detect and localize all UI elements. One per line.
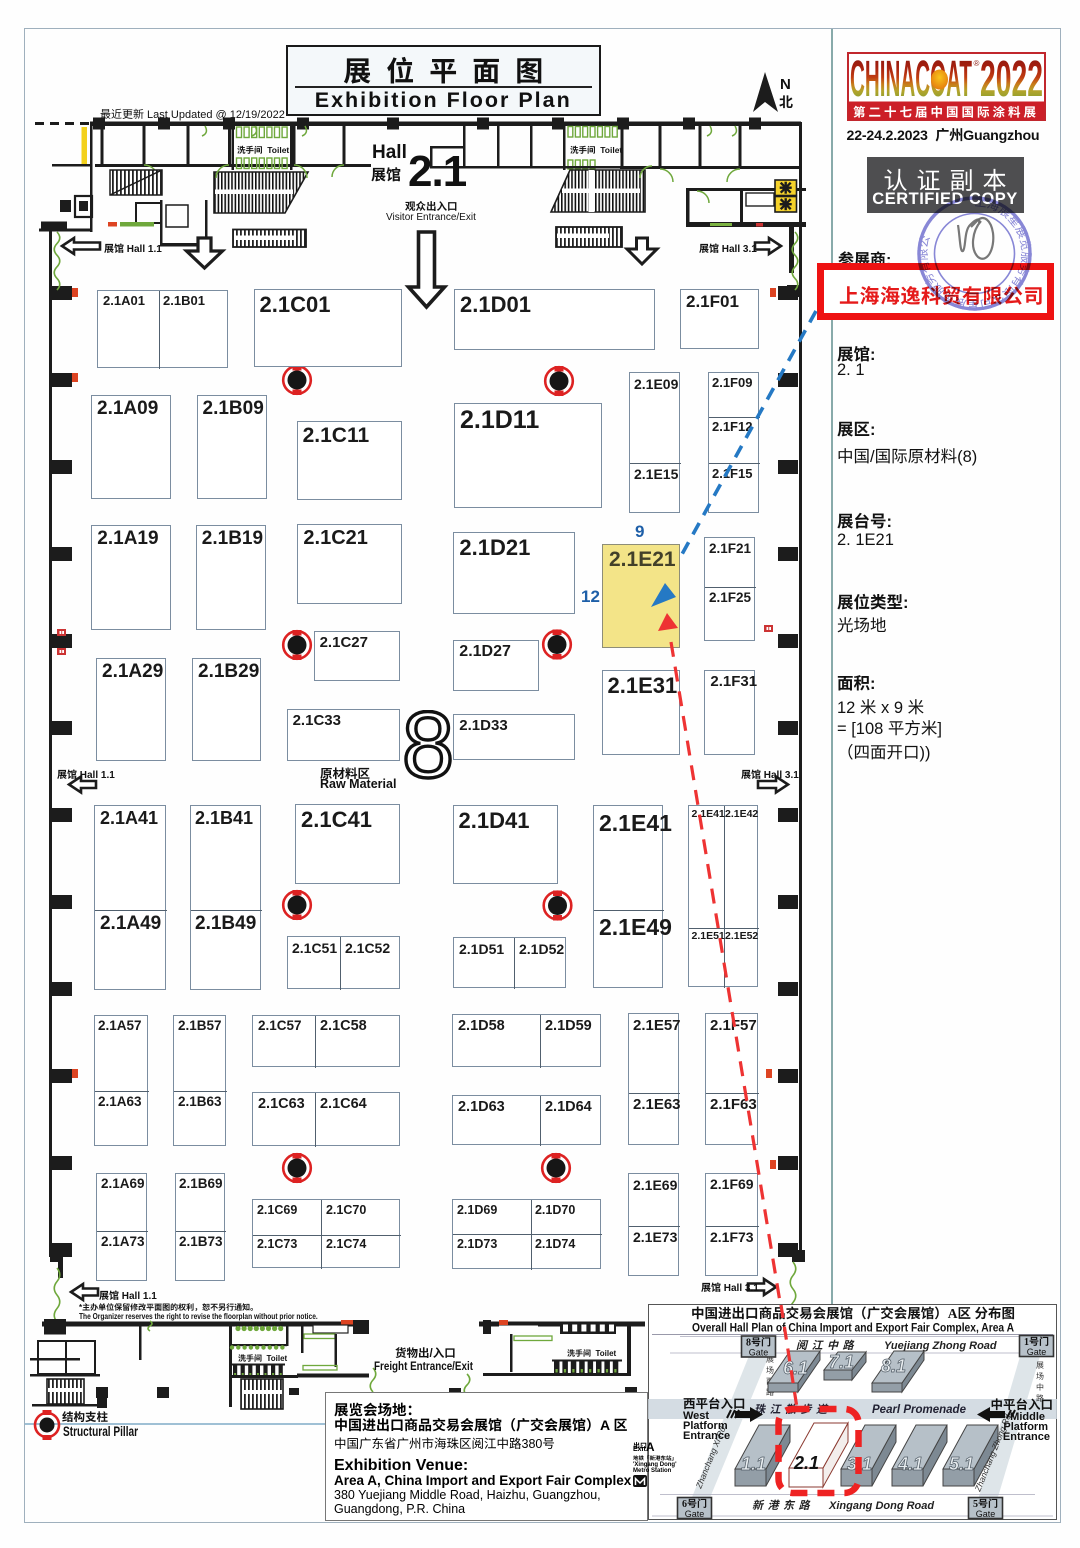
svg-text:1.1: 1.1: [741, 1454, 766, 1474]
svg-text:Pearl Promenade: Pearl Promenade: [872, 1404, 967, 1416]
svg-text:6号门: 6号门: [682, 1495, 707, 1510]
svg-text:Gate: Gate: [1026, 1347, 1046, 1357]
svg-text:1号门: 1号门: [1024, 1333, 1049, 1348]
svg-text:6.1: 6.1: [783, 1358, 808, 1378]
svg-text:2.1: 2.1: [793, 1453, 819, 1473]
svg-text:5号门: 5号门: [973, 1495, 998, 1510]
svg-text:Xingang Dong Road: Xingang Dong Road: [828, 1500, 934, 1512]
svg-text:新港东路: 新港东路: [752, 1497, 814, 1513]
svg-text:4.1: 4.1: [897, 1454, 923, 1474]
svg-text:中国进出口商品交易会展馆（广交会展馆）A区 分布图: 中国进出口商品交易会展馆（广交会展馆）A区 分布图: [691, 1304, 1015, 1322]
svg-text:8.1: 8.1: [881, 1356, 906, 1376]
svg-text:Entrance: Entrance: [683, 1430, 730, 1442]
svg-text:Entrance: Entrance: [1002, 1431, 1049, 1443]
svg-text:Overall Hall Plan of China Imp: Overall Hall Plan of China Import and Ex…: [692, 1322, 1014, 1334]
svg-text:Gate: Gate: [684, 1509, 704, 1519]
svg-text:5.1: 5.1: [949, 1454, 974, 1474]
svg-text:8号门: 8号门: [746, 1333, 771, 1348]
svg-text:Gate: Gate: [975, 1509, 995, 1519]
svg-text:7.1: 7.1: [829, 1352, 854, 1372]
svg-text:Yuejiang Zhong Road: Yuejiang Zhong Road: [884, 1340, 997, 1352]
svg-text:Gate: Gate: [748, 1347, 768, 1357]
